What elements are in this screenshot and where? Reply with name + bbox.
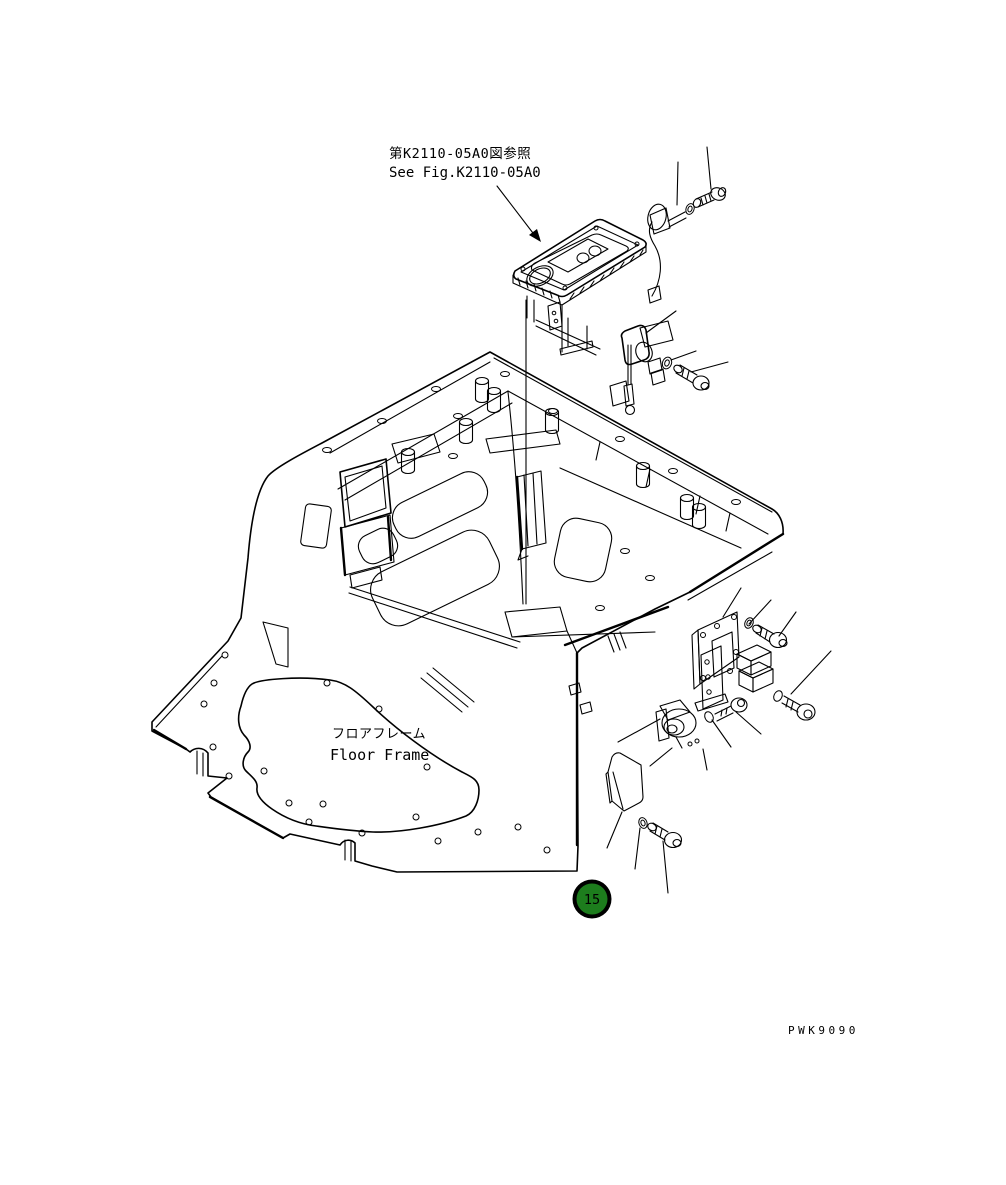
part-label-en: Floor Frame bbox=[330, 746, 429, 764]
standoff-cylinder bbox=[476, 378, 489, 403]
standoff-cylinder bbox=[681, 495, 694, 520]
wire-connector bbox=[648, 286, 661, 303]
lower-bracket bbox=[701, 646, 723, 709]
leader-bolt-lower-right bbox=[791, 651, 831, 694]
standoff-cylinder bbox=[637, 463, 650, 488]
diagram-canvas: 第K2110-05A0図参照 See Fig.K2110-05A0 フロアフレー… bbox=[0, 0, 1006, 1185]
wire-clamp-mid bbox=[610, 326, 665, 415]
wall-slot-small bbox=[354, 524, 401, 568]
bolt-top bbox=[692, 185, 727, 208]
leader-washer3 bbox=[712, 720, 731, 747]
leader-clamp bbox=[646, 311, 676, 333]
cover-plate-assembly bbox=[606, 753, 682, 848]
callout-number[interactable]: 15 bbox=[584, 892, 600, 908]
wire-clamp-top bbox=[645, 185, 727, 234]
deck-inner-edge-left bbox=[338, 391, 508, 489]
wall-plate-inner bbox=[345, 466, 386, 521]
wall-slot-upper bbox=[387, 466, 494, 544]
pillar-window bbox=[300, 503, 332, 548]
console-hole-2 bbox=[589, 246, 601, 256]
console-round-hole bbox=[523, 262, 556, 291]
leader-bolt3 bbox=[736, 712, 761, 734]
center-riser bbox=[341, 471, 546, 588]
leader-bolt-mid bbox=[691, 362, 728, 372]
leader-plate bbox=[607, 812, 622, 848]
leader-washer-mid bbox=[671, 351, 696, 360]
console-panel-outline bbox=[514, 220, 646, 297]
edge-clip bbox=[569, 683, 581, 695]
part-callout-15[interactable]: 15 bbox=[573, 880, 612, 919]
leader-horn-2 bbox=[650, 748, 672, 766]
bolt-right bbox=[751, 624, 787, 648]
deck-standoffs bbox=[402, 378, 706, 529]
leader-washer-top bbox=[677, 162, 678, 205]
leader-washer-right bbox=[749, 600, 771, 624]
console-support-legs bbox=[527, 296, 600, 355]
hook-ring bbox=[626, 406, 635, 415]
mount-bracket-flange bbox=[692, 630, 700, 689]
relay-box-1 bbox=[737, 645, 771, 675]
console-hole-1 bbox=[577, 253, 589, 263]
wall-floor-junction bbox=[350, 587, 520, 642]
rail-end-cap bbox=[505, 607, 567, 637]
standoff-cylinder bbox=[488, 388, 501, 413]
right-wall-opening bbox=[551, 515, 614, 585]
leader-bolt-right bbox=[779, 612, 796, 636]
washer-top bbox=[684, 202, 695, 215]
right-wing bbox=[421, 442, 783, 845]
deck-edge-right bbox=[494, 358, 772, 512]
tag-plate bbox=[610, 381, 629, 406]
leader-plate-bolt bbox=[663, 841, 668, 893]
plate-bolt bbox=[646, 822, 681, 848]
parts-diagram-page: 第K2110-05A0図参照 See Fig.K2110-05A0 フロアフレー… bbox=[0, 0, 1006, 1185]
leader-plate-washer bbox=[635, 828, 640, 869]
figure-reference-en: See Fig.K2110-05A0 bbox=[389, 165, 541, 181]
washer-bolt-mid bbox=[661, 356, 709, 390]
figure-reference-jp: 第K2110-05A0図参照 bbox=[389, 145, 531, 162]
cover-plate bbox=[608, 753, 643, 811]
leader-horn-1 bbox=[618, 719, 660, 742]
console-panel-assembly bbox=[513, 185, 727, 414]
deck-inner-edge-right bbox=[508, 391, 768, 534]
front-flanges bbox=[154, 622, 351, 861]
drawing-number: PWK9090 bbox=[788, 1024, 859, 1037]
horn bbox=[656, 700, 699, 748]
frame-outline bbox=[152, 352, 783, 872]
wall-slot-lower bbox=[364, 523, 506, 632]
leader-bracket bbox=[723, 588, 741, 617]
edge-clip bbox=[580, 702, 592, 714]
standoff-cylinder bbox=[693, 504, 706, 529]
leader-bolt-top bbox=[707, 147, 711, 189]
leader-horn-3 bbox=[703, 749, 707, 770]
deck-holes bbox=[323, 372, 741, 611]
hook-rod bbox=[624, 384, 634, 406]
washer-mid bbox=[661, 356, 674, 370]
right-bracket-assembly bbox=[656, 612, 815, 748]
rail-hatch bbox=[608, 632, 626, 652]
washer-lower-right bbox=[772, 689, 784, 702]
pillar-foot bbox=[263, 622, 288, 667]
wall-corner-line bbox=[508, 392, 523, 604]
clamp-block bbox=[650, 208, 670, 234]
bolt-lower-right bbox=[782, 696, 815, 720]
plate-washer bbox=[637, 816, 648, 829]
standoff-cylinder bbox=[460, 419, 473, 444]
relay-box-2 bbox=[739, 662, 773, 692]
floor-frame-body bbox=[152, 352, 783, 872]
mount-bracket-cutout bbox=[712, 632, 734, 677]
leader-see-fig bbox=[497, 186, 536, 237]
wire-loop bbox=[645, 202, 669, 232]
part-label-jp: フロアフレーム bbox=[332, 727, 426, 742]
